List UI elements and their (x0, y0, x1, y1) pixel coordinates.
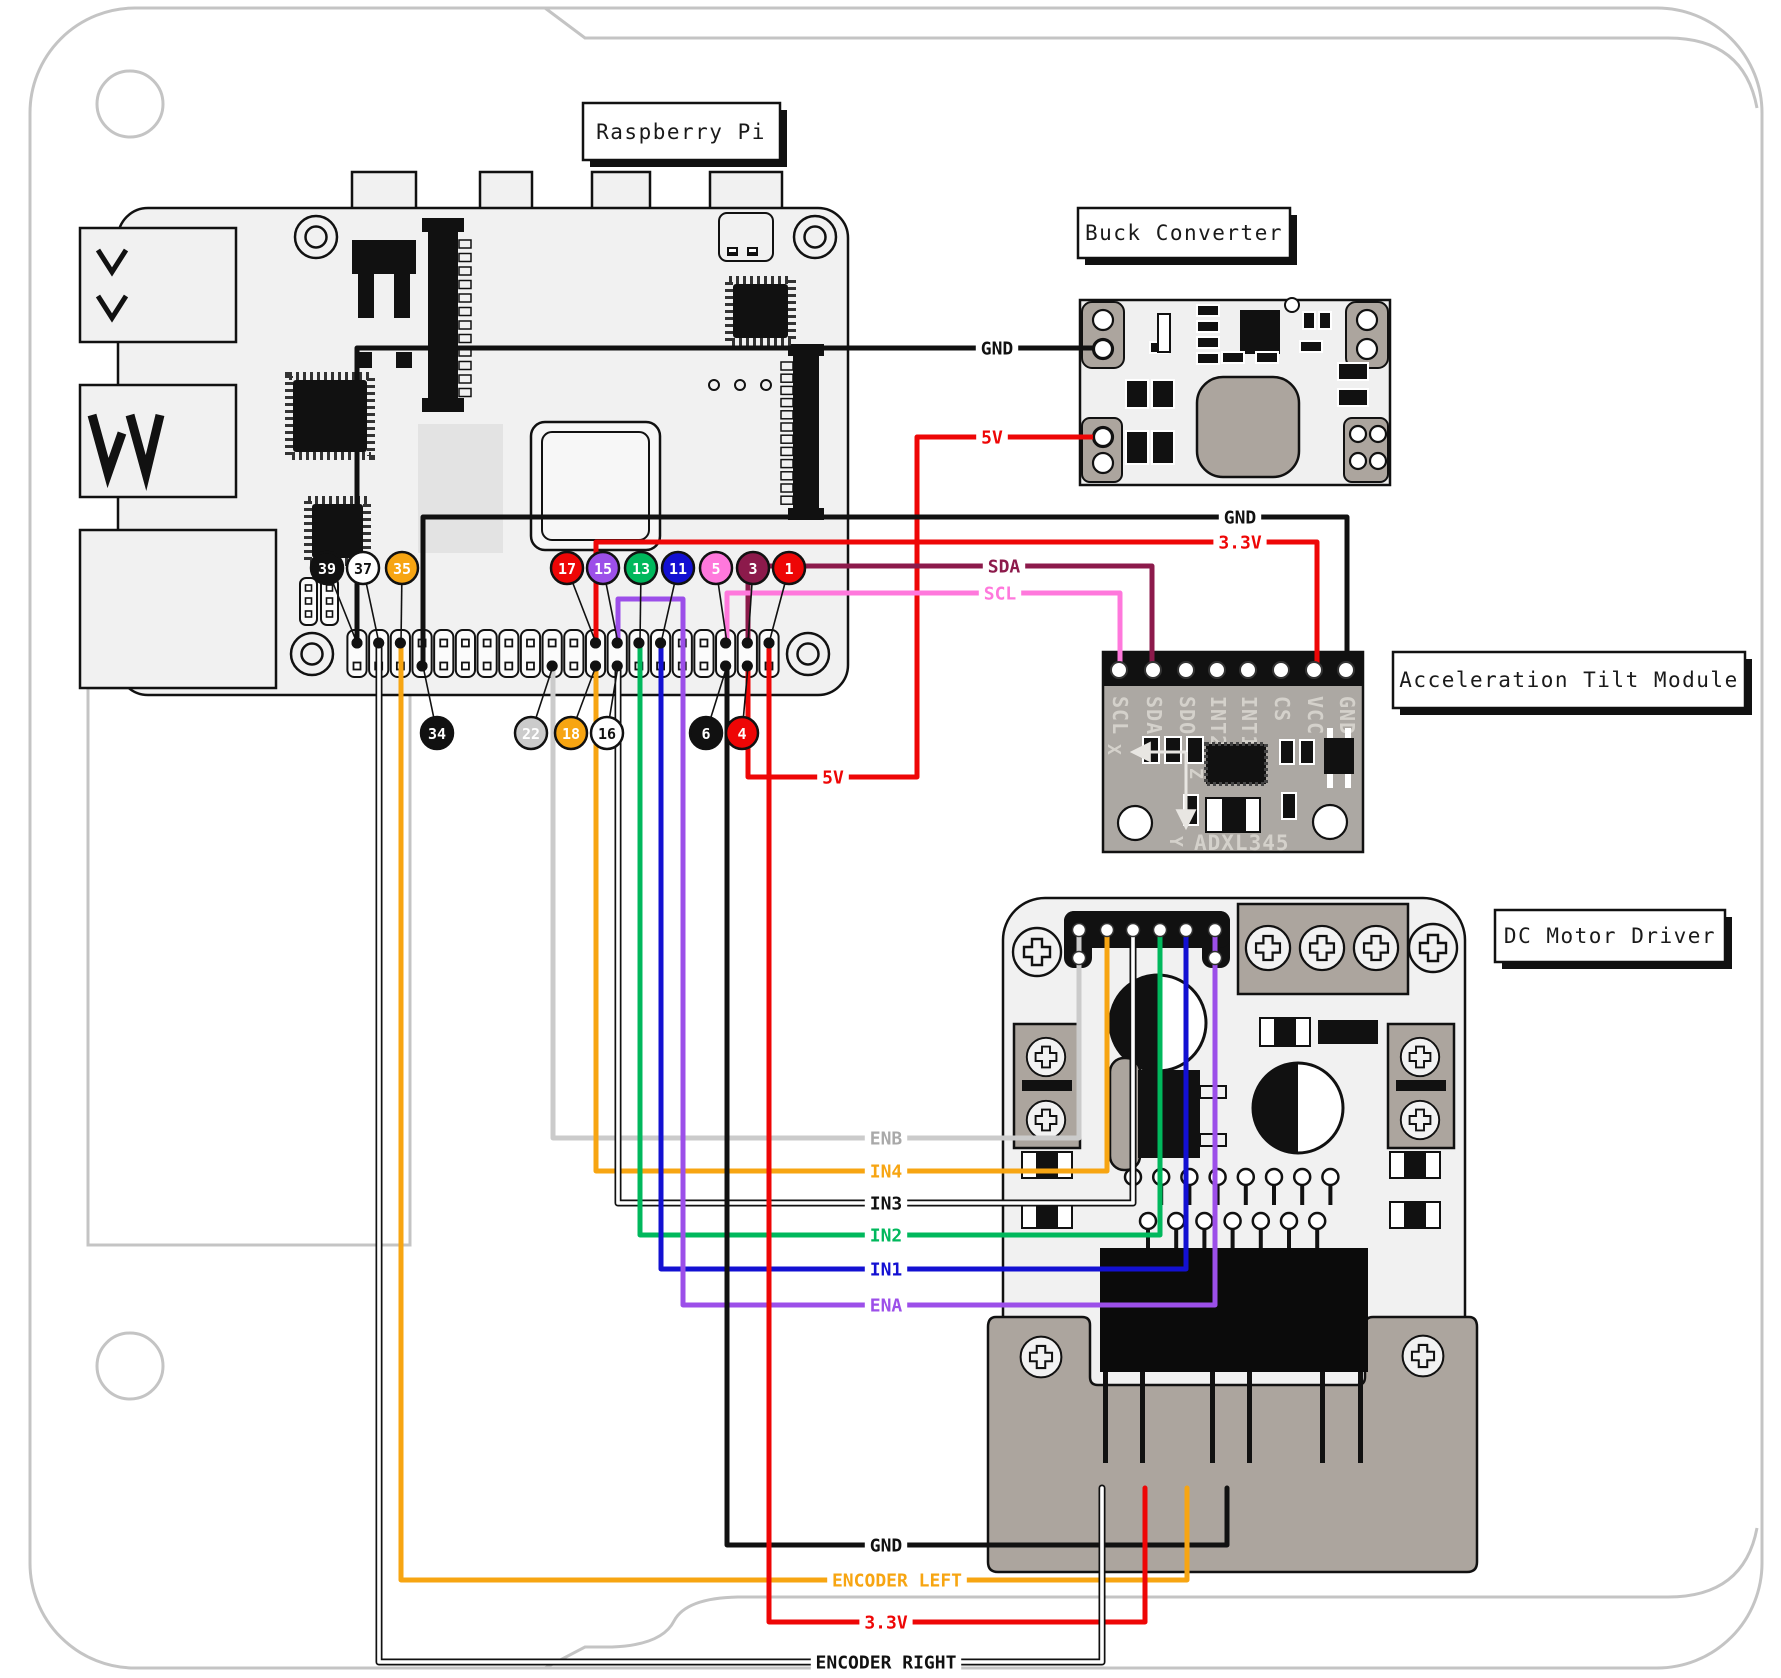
adxl-chip-text: ADXL345 (1194, 831, 1290, 855)
wire-label-5v: 5V (822, 768, 844, 789)
wire-label-encoder-left: ENCODER LEFT (832, 1571, 962, 1592)
buck-wire-hole (1094, 428, 1112, 446)
connector-tooth (781, 399, 793, 407)
chassis-hole-bottom (97, 1333, 163, 1399)
pin-badge-number: 39 (318, 560, 336, 578)
driver-header-hole (1180, 924, 1193, 937)
adxl-pin-hole (1111, 662, 1127, 678)
axis-x-label: X (1103, 744, 1124, 755)
connector-tooth (459, 335, 471, 343)
wire-label-gnd: GND (870, 1536, 903, 1557)
connector-tooth (781, 447, 793, 455)
chassis-seam-top (545, 8, 1757, 108)
chassis-battery-bay (88, 688, 410, 1245)
pin-stem (1202, 1229, 1206, 1249)
driver-header-hole (1154, 924, 1167, 937)
gpio-pin-used (742, 638, 753, 649)
gpio-pin (462, 663, 469, 670)
through-hole-pin (1210, 1169, 1226, 1185)
pin-stem (1272, 1185, 1276, 1205)
pin-badge-number: 16 (598, 725, 616, 743)
label-motor-driver: DC Motor Driver (1495, 910, 1732, 969)
gpio-pin (527, 663, 534, 670)
gpio-pin (440, 640, 447, 647)
connector-tooth (459, 362, 471, 370)
pin-stem (1146, 1229, 1150, 1249)
gpio-pin (700, 640, 707, 647)
axis-z-label: Z (1185, 768, 1206, 779)
aux-header-pin (327, 585, 333, 591)
through-hole-pin (1294, 1169, 1310, 1185)
connector-tooth (781, 362, 793, 370)
screw-icon (1401, 1101, 1439, 1139)
aux-header-pin (306, 585, 312, 591)
gpio-pin (700, 663, 707, 670)
chassis-hole-top (97, 71, 163, 137)
pi-led (735, 380, 745, 390)
adxl-pin-label-sda: SDA (1142, 696, 1166, 735)
adxl-mount-hole (1118, 806, 1152, 840)
pin-badge-number: 11 (669, 560, 687, 578)
connector-tooth (781, 411, 793, 419)
buck-inductor (1197, 377, 1299, 477)
pi-wifi-chip (733, 284, 788, 338)
through-hole-pin (1322, 1169, 1338, 1185)
connector-tooth (459, 294, 471, 302)
gpio-pin (462, 640, 469, 647)
pin-badge-number: 4 (737, 725, 746, 743)
wire-label-3-3v: 3.3V (1218, 533, 1262, 554)
adxl-pin-hole (1145, 662, 1161, 678)
wire-label-3-3v: 3.3V (864, 1613, 908, 1634)
wire-label-in1: IN1 (870, 1260, 903, 1281)
driver-header-hole (1073, 952, 1086, 965)
wire-label-in3: IN3 (870, 1194, 903, 1215)
terminal-slot (1022, 1080, 1072, 1091)
driver-regulator (1138, 1070, 1200, 1158)
through-hole-pin (1281, 1213, 1297, 1229)
pin-stem (1174, 1229, 1178, 1249)
adxl-pin-hole (1338, 662, 1354, 678)
adxl-pin-label-sdo: SDO (1175, 696, 1199, 735)
pin-badge-number: 15 (594, 560, 612, 578)
adxl345-module: SCLSDASDOINT2INT1CSVCCGND X Y Z ADXL345 (1103, 652, 1363, 855)
gpio-pin (484, 663, 491, 670)
pi-display-connector (422, 218, 471, 412)
pin-badge-number: 17 (558, 560, 576, 578)
connector-tooth (459, 308, 471, 316)
label-raspberry-pi: Raspberry Pi (583, 103, 787, 167)
connector-tooth (781, 472, 793, 480)
pin-stem (1287, 1229, 1291, 1249)
connector-tooth (781, 496, 793, 504)
pin-stem (1328, 1185, 1332, 1205)
buck-smd (1158, 314, 1170, 352)
adxl-cap-body (1222, 798, 1246, 832)
through-hole-pin (1253, 1213, 1269, 1229)
pi-port-tab (480, 172, 532, 212)
connector-tooth (781, 484, 793, 492)
gpio-pin-used (763, 638, 774, 649)
connector-tooth (459, 281, 471, 289)
pin-badge-number: 37 (354, 560, 372, 578)
pin-badge-number: 3 (748, 560, 757, 578)
gpio-pin (570, 640, 577, 647)
wire-label-in2: IN2 (870, 1226, 903, 1247)
screw-icon (1021, 1337, 1062, 1378)
wire-label-ena: ENA (870, 1296, 903, 1317)
connector-tooth (459, 375, 471, 383)
wire-label-gnd: GND (1224, 508, 1257, 529)
pin-stem (1315, 1229, 1319, 1249)
pi-ethernet-port (80, 228, 236, 342)
adxl-header-strip (1103, 652, 1363, 686)
pi-ram (418, 424, 503, 553)
adxl-pin-hole (1209, 662, 1225, 678)
adxl-pin-hole (1273, 662, 1289, 678)
gpio-pin (549, 640, 556, 647)
buck-ic (1240, 310, 1280, 354)
raspberry-pi-board (80, 172, 848, 695)
connector-tooth (459, 240, 471, 248)
screw-icon (1354, 926, 1398, 970)
aux-header-pin (306, 611, 312, 617)
pin-stem (1300, 1185, 1304, 1205)
pin-badge-number: 6 (701, 725, 710, 743)
pin-badge-number: 1 (784, 560, 793, 578)
wiring-diagram: SCLSDASDOINT2INT1CSVCCGND X Y Z ADXL345 (0, 0, 1781, 1678)
gpio-pin-used (655, 638, 666, 649)
pin-stem (1244, 1185, 1248, 1205)
pin-badge-number: 13 (632, 560, 650, 578)
screw-icon (1013, 928, 1061, 976)
through-hole-pin (1168, 1213, 1184, 1229)
adxl-pin-label-scl: SCL (1108, 696, 1132, 735)
connector-tooth (781, 423, 793, 431)
connector-tooth (781, 374, 793, 382)
pi-port-tab (592, 172, 650, 212)
screw-icon (1409, 924, 1457, 972)
wire-label-5v: 5V (981, 428, 1003, 449)
buck-via (1285, 298, 1299, 312)
pin-stem (1231, 1229, 1235, 1249)
connector-tooth (781, 386, 793, 394)
driver-header-hole (1073, 924, 1086, 937)
aux-header-pin (327, 598, 333, 604)
tilt-module-title: Acceleration Tilt Module (1399, 668, 1738, 692)
pi-usb-port-2 (80, 530, 276, 688)
adxl-pin-hole (1178, 662, 1194, 678)
buck-converter-board (1080, 298, 1390, 485)
connector-tooth (459, 254, 471, 262)
wire-label-gnd: GND (981, 339, 1014, 360)
through-hole-pin (1225, 1213, 1241, 1229)
adxl-ic (1206, 744, 1266, 784)
connector-tooth (459, 321, 471, 329)
screw-icon (1027, 1101, 1065, 1139)
pin-badge-number: 35 (393, 560, 411, 578)
through-hole-pin (1266, 1169, 1282, 1185)
gpio-pin (354, 663, 361, 670)
buck-converter-title: Buck Converter (1085, 221, 1283, 245)
screw-icon (1246, 926, 1290, 970)
gpio-pin (505, 663, 512, 670)
adxl-pin-hole (1306, 662, 1322, 678)
pin-badge-number: 22 (522, 725, 540, 743)
connector-tooth (781, 435, 793, 443)
adxl-pin-hole (1240, 662, 1256, 678)
hdmi-pin-notch (729, 249, 736, 252)
gpio-pin (570, 663, 577, 670)
adxl-pin-label-cs: CS (1270, 696, 1294, 722)
label-tilt-module: Acceleration Tilt Module (1393, 652, 1752, 715)
gpio-pin (527, 640, 534, 647)
driver-header-hole (1127, 924, 1140, 937)
through-hole-pin (1140, 1213, 1156, 1229)
wire-enb (553, 666, 1079, 1138)
pi-led (761, 380, 771, 390)
driver-header-hole (1209, 924, 1222, 937)
through-hole-pin (1238, 1169, 1254, 1185)
adxl-mount-hole (1313, 805, 1347, 839)
screw-icon (1403, 1336, 1444, 1377)
pin-stem (1259, 1229, 1263, 1249)
raspberry-pi-title: Raspberry Pi (596, 120, 766, 144)
gpio-pin (505, 640, 512, 647)
wire-label-sda: SDA (988, 557, 1021, 578)
driver-header-hole (1101, 924, 1114, 937)
screw-icon (1027, 1038, 1065, 1076)
connector-tooth (781, 460, 793, 468)
aux-header-pin (327, 611, 333, 617)
pin-badge-number: 34 (428, 725, 446, 743)
gpio-pin-used (633, 638, 644, 649)
wire-label-encoder-right: ENCODER RIGHT (816, 1653, 957, 1674)
pin-badge-number: 18 (562, 725, 580, 743)
label-buck-converter: Buck Converter (1078, 208, 1297, 265)
pin-badge-number: 5 (711, 560, 720, 578)
aux-header-pin (306, 598, 312, 604)
buck-wire-hole (1094, 340, 1112, 358)
adxl-pin-label-int1: INT1 (1237, 696, 1261, 748)
connector-tooth (459, 389, 471, 397)
adxl-regulator (1324, 738, 1354, 774)
gpio-pin (440, 663, 447, 670)
through-hole-pin (1196, 1213, 1212, 1229)
connector-tooth (459, 267, 471, 275)
hdmi-pin-notch (749, 249, 756, 252)
wire-label-scl: SCL (984, 584, 1017, 605)
motor-driver-title: DC Motor Driver (1504, 924, 1716, 948)
wire-label-enb: ENB (870, 1129, 903, 1150)
gpio-pin (484, 640, 491, 647)
adxl-pin-label-vcc: VCC (1303, 696, 1327, 735)
pi-led (709, 380, 719, 390)
through-hole-pin (1309, 1213, 1325, 1229)
pi-shield-outline (531, 422, 660, 550)
screw-icon (1401, 1038, 1439, 1076)
gpio-pin-used (417, 661, 428, 672)
axis-y-label: Y (1165, 836, 1186, 847)
wire-label-in4: IN4 (870, 1162, 903, 1183)
adxl-pin-label-int2: INT2 (1206, 696, 1230, 748)
driver-header-hole (1209, 952, 1222, 965)
screw-icon (1300, 926, 1344, 970)
terminal-slot (1396, 1080, 1446, 1091)
